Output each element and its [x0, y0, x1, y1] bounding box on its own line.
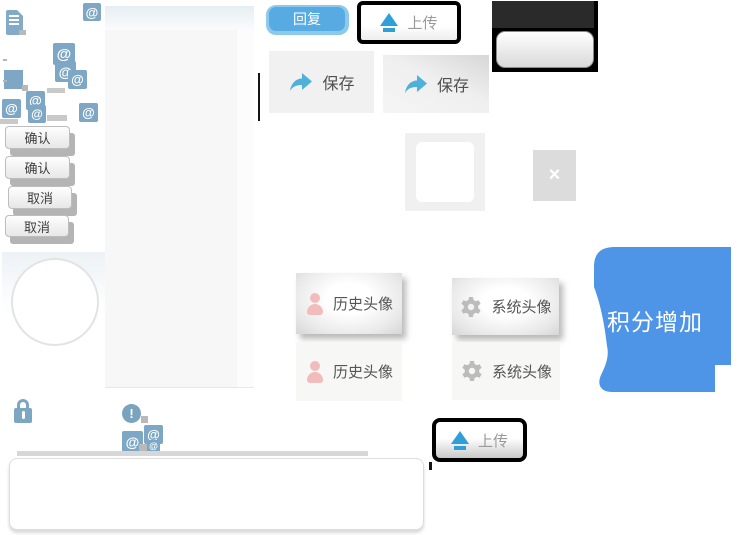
upload-button-bottom[interactable]: 上传 [432, 418, 527, 462]
history-avatar-button-1[interactable]: 历史头像 [296, 273, 402, 334]
alert-glyph: ! [129, 406, 133, 421]
save-button-label: 保存 [322, 70, 354, 94]
gray-dash [3, 80, 7, 82]
save-button-label: 保存 [437, 72, 469, 96]
system-avatar-label: 系统头像 [491, 296, 551, 317]
gray-strip [0, 119, 18, 124]
history-avatar-button-2[interactable]: 历史头像 [296, 342, 402, 401]
reply-button-label: 回复 [269, 7, 345, 31]
gray-square [22, 85, 28, 91]
gear-icon [460, 359, 484, 383]
system-avatar-button-2[interactable]: 系统头像 [452, 342, 560, 400]
gear-icon [459, 295, 483, 319]
cursor-line [258, 73, 260, 121]
avatar-circle [11, 258, 99, 346]
gray-strip [47, 115, 67, 121]
person-icon [305, 361, 325, 383]
cancel-button-label: 取消 [24, 217, 50, 236]
at-icon: @ [83, 3, 101, 21]
panel-inner-area [105, 30, 237, 387]
close-button[interactable]: × [533, 150, 576, 201]
black-toolbar [492, 1, 598, 72]
upload-button-top[interactable]: 上传 [357, 1, 461, 44]
close-icon: × [549, 164, 561, 187]
gray-dash [3, 59, 7, 61]
comment-box[interactable] [9, 458, 424, 530]
upload-icon [451, 431, 469, 450]
system-avatar-button-1[interactable]: 系统头像 [452, 278, 559, 335]
reply-button[interactable]: 回复 [266, 5, 349, 35]
upload-button-label: 上传 [478, 430, 508, 451]
gray-square [141, 416, 148, 423]
points-toast-label: 积分增加 [607, 303, 703, 337]
cancel-button-label: 取消 [27, 188, 53, 207]
gray-square [19, 30, 26, 35]
cancel-button-2[interactable]: 取消 [5, 215, 69, 237]
cancel-button-1[interactable]: 取消 [8, 186, 72, 209]
panel-top-gradient [105, 6, 254, 32]
history-avatar-label: 历史头像 [333, 293, 393, 314]
upload-button-label: 上传 [407, 12, 437, 33]
widget-sprite-canvas: @ @ @ @ @ @ @ @ @ @ @ 回复 上传 保存 保存 [0, 0, 750, 535]
image-frame [405, 133, 485, 211]
toolbar-header [492, 1, 594, 28]
at-icon: @ [68, 70, 87, 89]
alert-icon: ! [122, 404, 141, 423]
person-icon [305, 293, 325, 315]
history-avatar-label: 历史头像 [333, 361, 393, 382]
list-panel [105, 6, 254, 388]
share-icon [403, 74, 429, 94]
gray-strip [47, 88, 65, 93]
image-frame-inner [416, 142, 474, 202]
confirm-button-1[interactable]: 确认 [5, 126, 70, 149]
confirm-button-label: 确认 [24, 128, 50, 147]
at-icon: @ [28, 105, 46, 123]
share-icon [288, 72, 314, 92]
comment-box-shadow-bar [17, 451, 368, 456]
save-button-1[interactable]: 保存 [269, 51, 374, 113]
lock-icon [14, 399, 32, 423]
at-icon: @ [79, 103, 98, 122]
toolbar-pill-button[interactable] [496, 31, 594, 68]
confirm-button-label: 确认 [24, 158, 50, 177]
upload-icon [380, 13, 398, 32]
shadow-tick [429, 462, 432, 470]
at-icon: @ [2, 99, 21, 118]
confirm-button-2[interactable]: 确认 [5, 156, 70, 179]
system-avatar-label: 系统头像 [492, 361, 552, 382]
save-button-2[interactable]: 保存 [383, 55, 489, 113]
